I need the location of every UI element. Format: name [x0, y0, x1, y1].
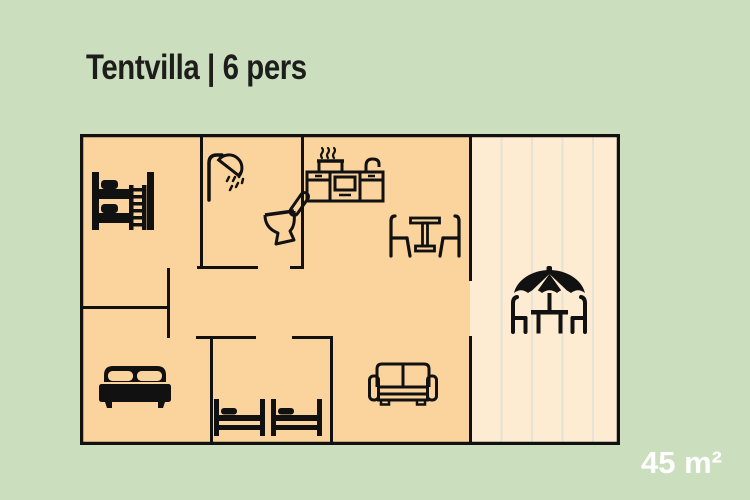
area-label: 45 m²: [641, 445, 722, 481]
floorplan: [80, 134, 620, 445]
page-background: { "title": "Tentvilla | 6 pers", "area_l…: [0, 0, 750, 500]
double-bed-icon: [99, 366, 171, 408]
page-title: Tentvilla | 6 pers: [86, 48, 307, 88]
